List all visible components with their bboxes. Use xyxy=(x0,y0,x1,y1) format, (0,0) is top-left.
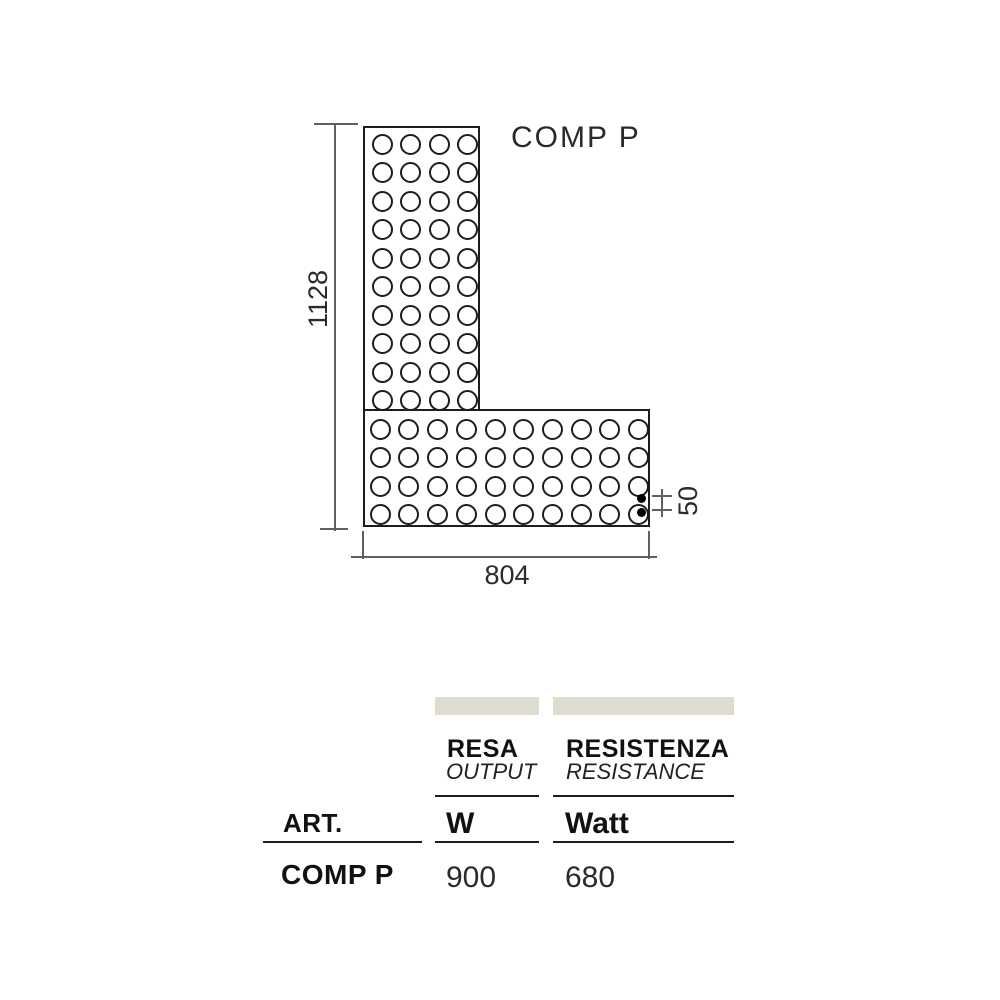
radiator-hole xyxy=(372,362,393,383)
radiator-hole xyxy=(372,134,393,155)
radiator-hole xyxy=(513,447,534,468)
width-extension-left xyxy=(362,531,364,559)
radiator-hole xyxy=(370,504,391,525)
width-extension-right xyxy=(648,531,650,559)
radiator-hole xyxy=(513,419,534,440)
radiator-hole xyxy=(599,447,620,468)
header-rule-col2 xyxy=(435,795,539,797)
radiator-hole xyxy=(542,447,563,468)
radiator-hole xyxy=(400,305,421,326)
spacing-dimension-line xyxy=(661,489,663,517)
radiator-hole xyxy=(457,362,478,383)
radiator-hole xyxy=(429,248,450,269)
radiator-hole xyxy=(457,248,478,269)
radiator-hole xyxy=(372,162,393,183)
radiator-hole xyxy=(372,191,393,212)
radiator-hole xyxy=(370,447,391,468)
row-resistance-value: 680 xyxy=(565,863,615,893)
radiator-hole xyxy=(599,419,620,440)
radiator-hole xyxy=(457,162,478,183)
watt-unit-resa: W xyxy=(446,809,474,839)
height-dimension-label: 1128 xyxy=(305,264,333,334)
radiator-hole xyxy=(457,134,478,155)
radiator-hole xyxy=(457,219,478,240)
radiator-hole xyxy=(427,504,448,525)
radiator-horizontal-panel xyxy=(363,409,650,527)
radiator-hole xyxy=(571,504,592,525)
width-dimension-line xyxy=(351,556,657,558)
radiator-hole xyxy=(485,447,506,468)
radiator-hole xyxy=(457,276,478,297)
radiator-hole xyxy=(542,419,563,440)
radiator-hole xyxy=(457,191,478,212)
product-spec-sheet: 1128 50 804 COMP P RESA OUTPUT RESISTENZ… xyxy=(0,0,1000,1000)
height-dimension-line xyxy=(334,123,336,531)
radiator-hole xyxy=(456,419,477,440)
radiator-hole xyxy=(513,476,534,497)
resa-column-bar xyxy=(435,697,539,715)
radiator-hole xyxy=(429,333,450,354)
radiator-hole xyxy=(400,134,421,155)
radiator-hole xyxy=(542,504,563,525)
radiator-hole xyxy=(372,305,393,326)
spacing-dimension-label: 50 xyxy=(675,481,701,521)
radiator-hole xyxy=(398,447,419,468)
units-rule-col1 xyxy=(263,841,422,843)
radiator-hole xyxy=(427,476,448,497)
radiator-hole xyxy=(456,447,477,468)
radiator-hole xyxy=(599,504,620,525)
radiator-hole xyxy=(370,419,391,440)
connection-dot xyxy=(637,494,646,503)
art-header: ART. xyxy=(283,810,343,836)
radiator-hole xyxy=(400,362,421,383)
radiator-hole xyxy=(400,390,421,411)
radiator-hole xyxy=(398,476,419,497)
radiator-hole xyxy=(429,134,450,155)
connection-dot xyxy=(637,508,646,517)
radiator-hole xyxy=(429,191,450,212)
radiator-hole xyxy=(599,476,620,497)
radiator-hole xyxy=(457,390,478,411)
radiator-hole xyxy=(429,219,450,240)
radiator-hole xyxy=(429,305,450,326)
radiator-hole xyxy=(398,419,419,440)
radiator-hole xyxy=(457,305,478,326)
radiator-hole xyxy=(372,276,393,297)
radiator-hole xyxy=(427,419,448,440)
radiator-hole xyxy=(542,476,563,497)
radiator-hole xyxy=(628,419,649,440)
radiator-hole xyxy=(372,219,393,240)
radiator-hole xyxy=(370,476,391,497)
radiator-hole xyxy=(485,419,506,440)
radiator-hole xyxy=(400,248,421,269)
height-dimension-tick-bottom xyxy=(320,528,348,530)
radiator-hole xyxy=(513,504,534,525)
radiator-hole xyxy=(571,476,592,497)
radiator-hole xyxy=(398,504,419,525)
radiator-hole xyxy=(429,390,450,411)
resistenza-column-bar xyxy=(553,697,734,715)
radiator-hole xyxy=(429,362,450,383)
radiator-hole xyxy=(457,333,478,354)
watt-unit-resistenza: Watt xyxy=(565,809,629,839)
radiator-hole xyxy=(628,447,649,468)
radiator-hole xyxy=(372,390,393,411)
radiator-hole xyxy=(400,333,421,354)
radiator-hole xyxy=(372,333,393,354)
header-rule-col3 xyxy=(553,795,734,797)
diagram-title: COMP P xyxy=(511,123,641,153)
radiator-hole xyxy=(456,504,477,525)
radiator-hole xyxy=(427,447,448,468)
units-rule-col3 xyxy=(553,841,734,843)
radiator-hole xyxy=(485,504,506,525)
radiator-vertical-panel xyxy=(363,126,480,411)
row-art-value: COMP P xyxy=(281,861,394,889)
height-dimension-tick-top xyxy=(314,123,358,125)
radiator-hole xyxy=(571,447,592,468)
radiator-hole xyxy=(400,162,421,183)
radiator-hole xyxy=(400,276,421,297)
radiator-hole xyxy=(429,276,450,297)
radiator-hole xyxy=(429,162,450,183)
output-subheader: OUTPUT xyxy=(446,761,536,783)
radiator-hole xyxy=(456,476,477,497)
radiator-hole xyxy=(400,219,421,240)
units-rule-col2 xyxy=(435,841,539,843)
width-dimension-label: 804 xyxy=(457,562,557,589)
radiator-hole xyxy=(485,476,506,497)
radiator-hole xyxy=(400,191,421,212)
row-output-value: 900 xyxy=(446,863,496,893)
resistance-subheader: RESISTANCE xyxy=(566,761,705,783)
radiator-hole xyxy=(571,419,592,440)
radiator-hole xyxy=(372,248,393,269)
